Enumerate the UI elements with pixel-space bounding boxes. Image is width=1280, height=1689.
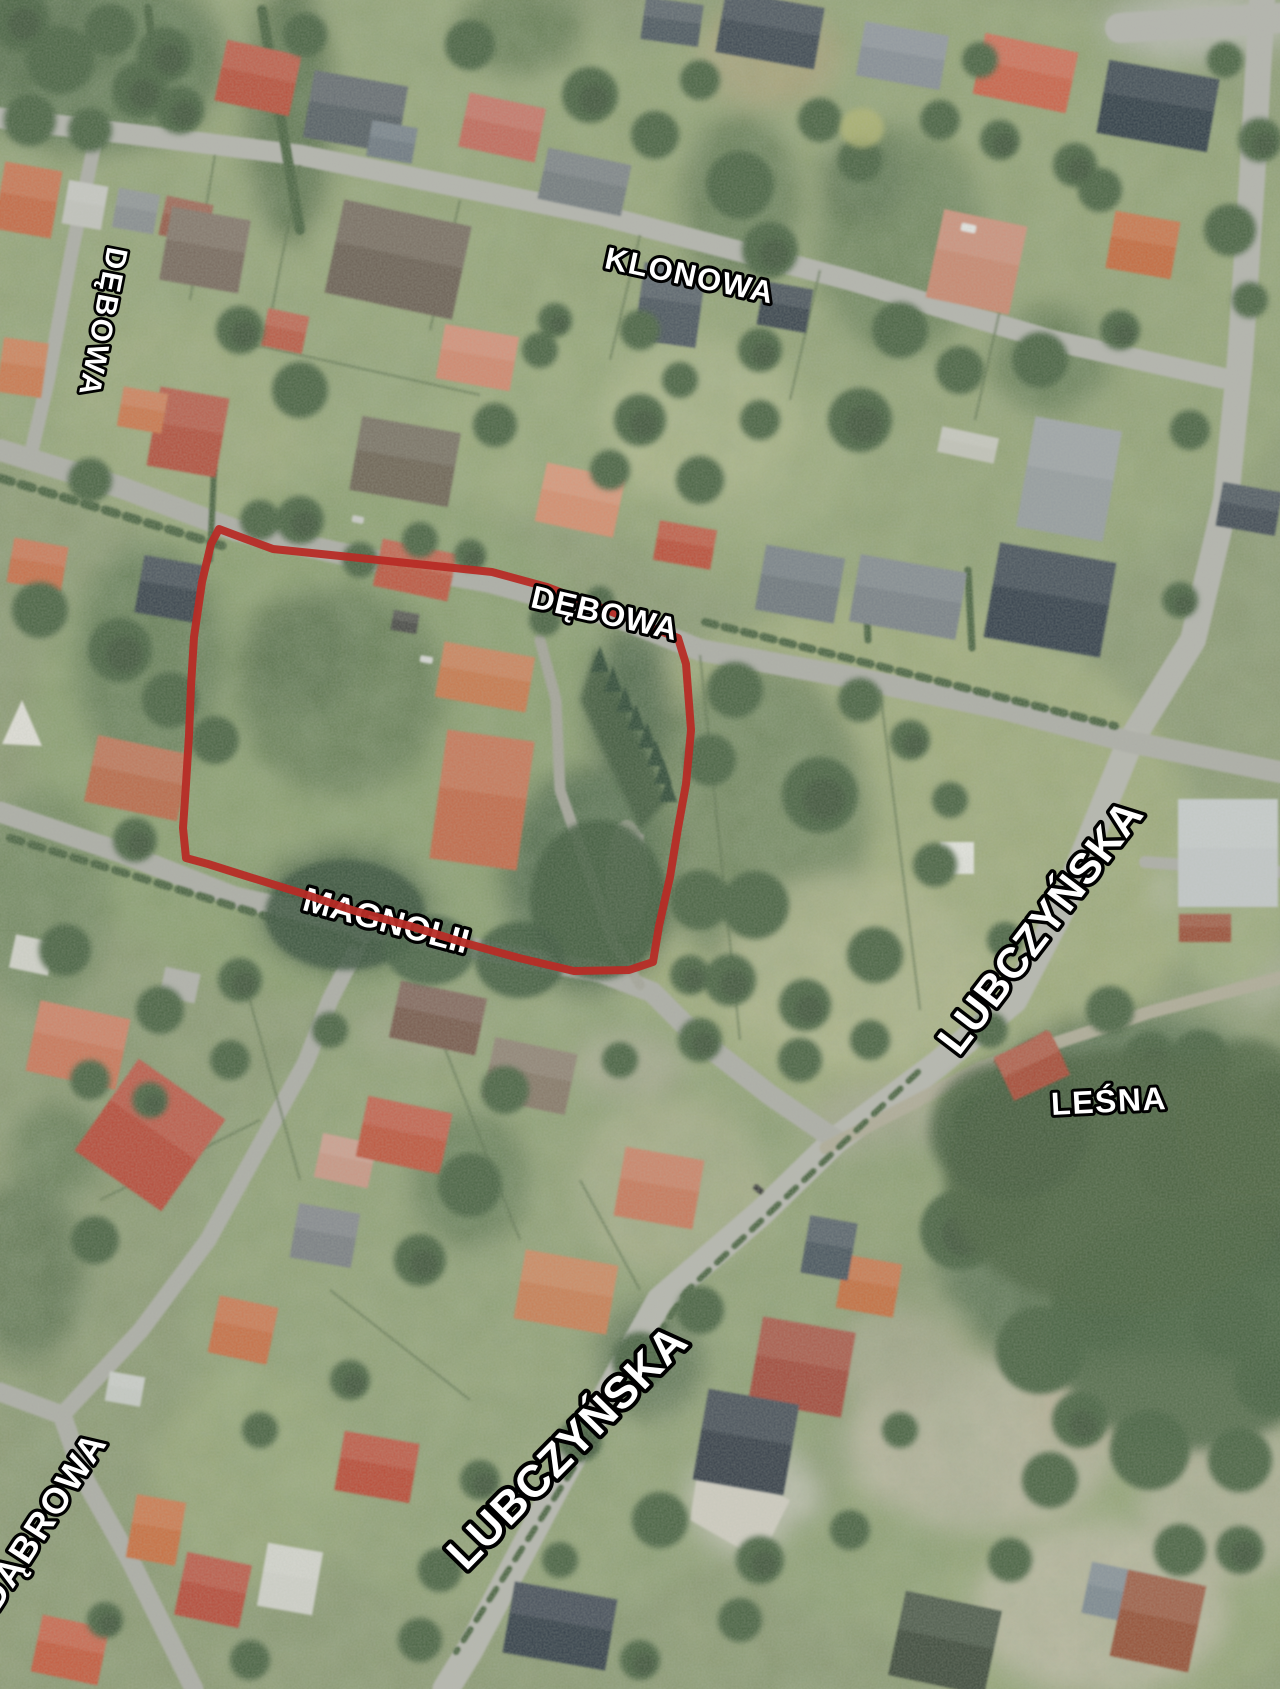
svg-text:LEŚNA: LEŚNA (1050, 1080, 1168, 1122)
